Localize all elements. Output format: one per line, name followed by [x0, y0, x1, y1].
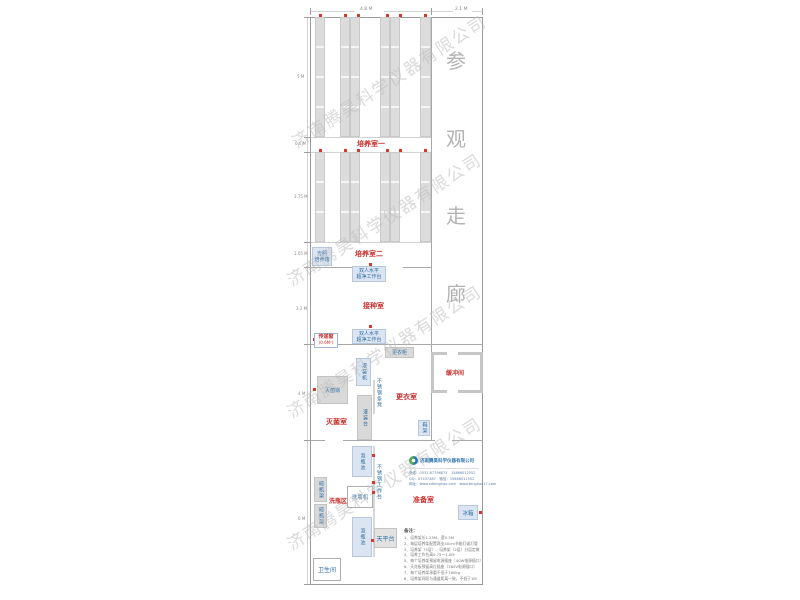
- room-label-washing-area: 洗瓶区: [329, 496, 347, 505]
- red-marker-dot: [372, 454, 375, 457]
- red-marker-dot: [386, 149, 389, 152]
- corridor-char: 观: [446, 123, 466, 152]
- aisle-line: [310, 152, 431, 153]
- dimension-label: 5 M: [297, 74, 304, 79]
- clean-bench: 双人水平 超净工作台: [352, 266, 386, 282]
- corridor-title: 参 观 走 廊: [446, 45, 466, 307]
- red-marker-dot: [399, 149, 402, 152]
- bottle-rack: 晾瓶架: [314, 504, 327, 528]
- red-marker-dot: [424, 149, 427, 152]
- corridor-char: 走: [446, 200, 466, 229]
- red-marker-dot: [371, 539, 374, 542]
- bottle-rack-label: 晾瓶架: [318, 507, 323, 525]
- wardrobe-label: 更衣柜: [392, 349, 407, 356]
- note-item: 8、培养架间距与通道距离一致，不低于1M: [404, 576, 479, 582]
- red-marker-dot: [369, 325, 372, 328]
- red-marker-dot: [344, 149, 347, 152]
- room-label-buffer: 缓冲间: [446, 368, 464, 377]
- culture-rack: [350, 152, 360, 242]
- room-label-culture2: 培养室二: [355, 249, 383, 259]
- clean-bench-label: 超净工作台: [356, 337, 381, 343]
- culture-rack: [420, 17, 431, 137]
- soak-pool: 泡瓶池: [352, 517, 372, 557]
- culture-rack: [390, 17, 400, 137]
- autoclave: 灭菌锅: [317, 376, 348, 404]
- dimension-label: 3.2 M: [296, 306, 307, 311]
- note-item: 2、每层培养架配置两支40cm节能灯或灯管: [404, 541, 479, 547]
- dimension-tick: [431, 8, 432, 15]
- dimension-tick: [304, 344, 311, 345]
- pass-window: 传递窗 (0.6M²): [314, 333, 338, 348]
- soak-pool: 泡瓶池: [352, 446, 372, 477]
- culture-rack: [315, 152, 325, 242]
- buffer-door-gap: [447, 389, 458, 394]
- corridor-char: 廊: [446, 278, 466, 307]
- room-label-toilet: 卫生间: [318, 565, 336, 574]
- wall: [452, 440, 483, 441]
- room-label-inoculation: 接种室: [363, 301, 384, 311]
- dimension-label: 1.05 M: [294, 251, 308, 256]
- corridor-char: 参: [446, 45, 466, 74]
- dimension-line: [384, 11, 431, 12]
- light-incubator-label: 培养箱: [314, 257, 329, 263]
- shoe-rack-label: 鞋架: [422, 422, 427, 434]
- bottle-rack-label: 晾瓶架: [318, 481, 323, 499]
- culture-rack: [380, 17, 390, 137]
- floor-plan: 济南腾昊科学仪器有限公司 济南腾昊科学仪器有限公司 济南腾昊科学仪器有限公司 济…: [0, 0, 800, 600]
- culture-rack: [340, 17, 350, 137]
- filling-machine: 灌装机: [356, 358, 371, 386]
- room-label-preparation: 准备室: [413, 495, 434, 505]
- toilet-room: 卫生间: [313, 558, 341, 581]
- dimension-line: [310, 11, 355, 12]
- red-marker-dot: [372, 491, 375, 494]
- room-label-sterilization: 灭菌室: [326, 417, 347, 427]
- pass-window-size: (0.6M²): [315, 340, 337, 345]
- soak-pool-label: 泡瓶池: [360, 528, 365, 546]
- red-marker-dot: [357, 14, 360, 17]
- room-label-culture1: 培养室一: [357, 139, 385, 149]
- red-marker-dot: [479, 511, 482, 514]
- steel-bench-label: 不锈钢条凳: [376, 378, 381, 408]
- dimension-tick: [304, 584, 311, 585]
- culture-rack: [315, 17, 325, 137]
- wall: [310, 440, 325, 441]
- notes-block: 备注： 1、培养架长1.25M，宽0.5M 2、每层培养架配置两支40cm节能灯…: [404, 528, 479, 581]
- red-marker-dot: [313, 388, 316, 391]
- culture-rack: [350, 17, 360, 137]
- dimension-label: 4.8 M: [360, 7, 372, 12]
- clean-bench: 双人水平 超净工作台: [352, 329, 386, 344]
- shoe-rack: 鞋架: [418, 420, 430, 436]
- red-marker-dot: [424, 14, 427, 17]
- clean-bench-label: 超净工作台: [356, 274, 381, 280]
- red-marker-dot: [357, 149, 360, 152]
- balance-table: 天平台: [374, 528, 397, 548]
- dimension-label: 4 M: [298, 391, 305, 396]
- bottle-washer-label: 洗瓶机: [352, 493, 369, 501]
- red-marker-dot: [399, 14, 402, 17]
- dimension-line: [307, 17, 308, 585]
- fridge: 冰箱: [458, 505, 478, 520]
- dimension-tick: [304, 137, 311, 138]
- light-incubator: 光照 培养箱: [312, 247, 332, 266]
- culture-rack: [380, 152, 390, 242]
- steel-worktable-label: 不锈钢工作台: [376, 464, 381, 500]
- dimension-tick: [304, 267, 311, 268]
- dimension-tick: [304, 440, 311, 441]
- filling-machine-label: 灌装机: [361, 363, 366, 381]
- wall: [403, 267, 431, 268]
- dimension-label: 6 M: [298, 516, 305, 521]
- company-phone: 电话：0531-87796871 15866012552: [409, 471, 479, 477]
- red-marker-dot: [319, 149, 322, 152]
- buffer-door-gap: [447, 351, 458, 356]
- steel-bench-strip: [373, 380, 375, 414]
- dimension-label: 3.75 M: [294, 194, 308, 199]
- wardrobe: 更衣柜: [385, 347, 414, 358]
- filling-table: 灌装台: [357, 395, 372, 440]
- soak-pool-label: 泡瓶池: [360, 453, 365, 471]
- dimension-tick: [304, 17, 311, 18]
- wall: [343, 440, 435, 441]
- note-item: 6、天花板预留高位插座（380V电源插口）: [404, 564, 479, 570]
- company-web: 网址：www.sdtenghao.com www.tenghao17.com: [409, 482, 479, 488]
- culture-rack: [420, 152, 431, 242]
- red-marker-dot: [386, 14, 389, 17]
- culture-rack: [340, 152, 350, 242]
- company-name: 济南腾昊科学仪器有限公司: [420, 458, 474, 464]
- dimension-line: [431, 11, 453, 12]
- red-marker-dot: [344, 14, 347, 17]
- red-marker-dot: [372, 481, 375, 484]
- balance-table-label: 天平台: [376, 534, 394, 543]
- dimension-tick: [310, 8, 311, 15]
- aisle-line: [310, 137, 431, 138]
- aisle-line: [310, 242, 431, 243]
- fridge-label: 冰箱: [462, 509, 473, 517]
- dimension-label: 0.6 M: [295, 141, 306, 146]
- notes-header: 备注：: [404, 528, 479, 535]
- bottle-rack: 晾瓶架: [314, 477, 327, 502]
- filling-table-label: 灌装台: [362, 409, 367, 427]
- room-label-changing: 更衣室: [396, 392, 417, 402]
- company-logo: [409, 456, 418, 465]
- dimension-tick: [304, 242, 311, 243]
- autoclave-label: 灭菌锅: [325, 387, 340, 394]
- company-block: 济南腾昊科学仪器有限公司 电话：0531-87796871 1586601255…: [409, 456, 479, 488]
- dimension-label: 2.1 M: [455, 7, 467, 12]
- culture-rack: [390, 152, 400, 242]
- red-marker-dot: [319, 14, 322, 17]
- dimension-tick: [304, 152, 311, 153]
- bottle-washer: 洗瓶机: [347, 486, 373, 508]
- red-marker-dot: [369, 263, 372, 266]
- dimension-tick: [482, 8, 483, 15]
